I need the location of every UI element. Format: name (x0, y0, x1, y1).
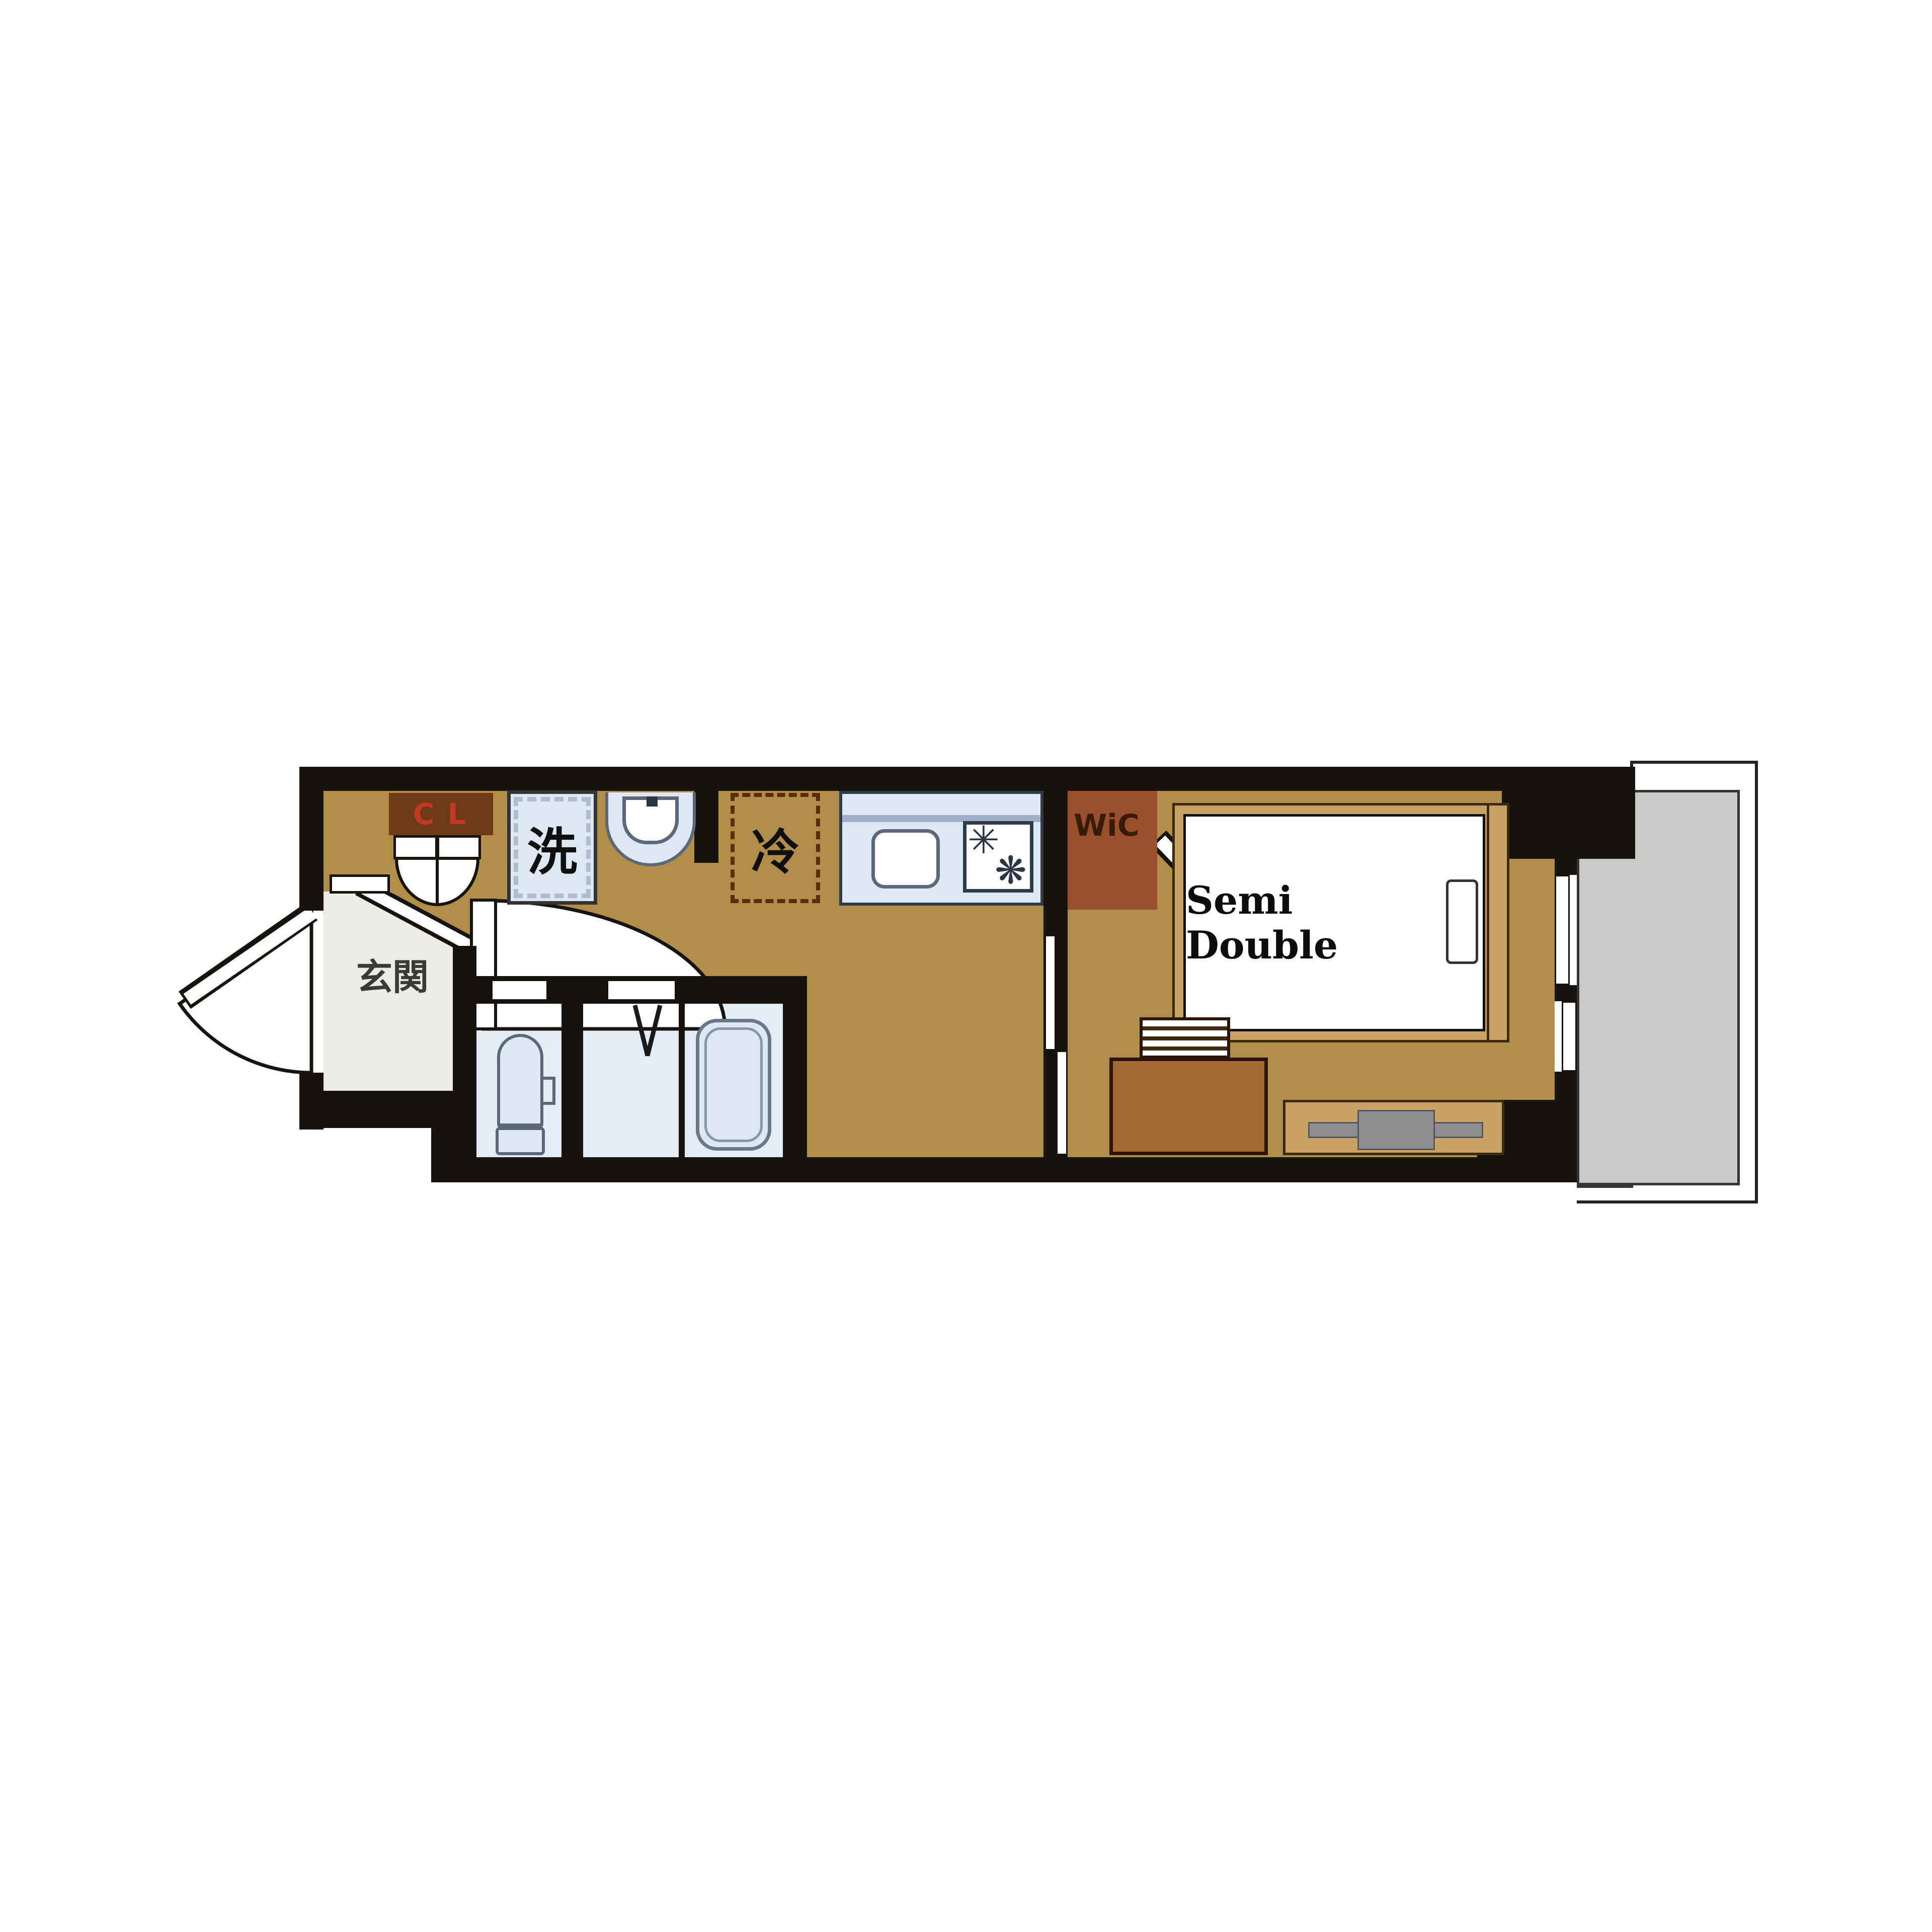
wall-tub-right (783, 976, 807, 1182)
desk-chair (1140, 1017, 1230, 1059)
tv-screen (1357, 1110, 1435, 1150)
bed-pillow (1446, 879, 1478, 964)
entrance-label: 玄関 (356, 947, 429, 1000)
bedroom-sliding-door-panel1 (1044, 935, 1056, 1051)
refrigerator-kanji: 冷 (735, 797, 816, 899)
washer-kanji: 洗 (511, 794, 594, 901)
wall-hall-stub (694, 791, 718, 863)
balcony-window-panel2 (1562, 1001, 1577, 1072)
desk (1109, 1058, 1268, 1155)
entrance-label-wrap: 玄関 (332, 951, 453, 996)
vanity-door (606, 979, 677, 1001)
wall-right-window-jamb3 (1555, 1072, 1577, 1102)
wall-right-window-jamb1 (1555, 859, 1577, 875)
washbasin-faucet-icon (647, 796, 658, 807)
bed-frame-seam (1487, 803, 1489, 1042)
wall-bottom (431, 1157, 1577, 1182)
wic-label: WiC (1074, 808, 1140, 843)
stove-burner-right-icon: ❋ (995, 848, 1027, 893)
hall-door-arc-icon (484, 901, 725, 1029)
toilet-handle-icon (543, 1077, 555, 1105)
kitchen-counter: ✳ ❋ (839, 791, 1043, 906)
kitchen-sink (871, 829, 940, 889)
wall-entry-step (431, 1091, 455, 1182)
wall-toilet-vanity (561, 976, 583, 1157)
bed-label: Semi Double (1186, 878, 1422, 968)
bathtub-inner (704, 1027, 763, 1142)
walk-in-closet-box: WiC (1068, 791, 1157, 910)
balcony-window-panel1 (1555, 875, 1570, 985)
refrigerator-box: 冷 (731, 793, 820, 903)
door-swing-layer (0, 0, 1932, 1932)
closet-bifold-right-icon (437, 858, 478, 905)
closet-cl: CL (389, 793, 493, 835)
floor-plan-page: CL 洗 冷 ✳ ❋ WiC (0, 0, 1932, 1932)
closet-bifold-panel-right (437, 835, 481, 859)
bedroom-sliding-door-panel2 (1056, 1051, 1068, 1155)
toilet-tank (496, 1127, 545, 1155)
wall-right-window-jamb2 (1555, 985, 1577, 1001)
washer-box: 洗 (507, 790, 597, 905)
shoe-cabinet (330, 874, 390, 894)
closet-label: CL (413, 797, 479, 831)
wall-left-upper (299, 767, 324, 911)
wall-top (299, 767, 1635, 791)
closet-bifold-panel-left (393, 835, 438, 859)
bathtub (696, 1019, 771, 1151)
wall-bedroom-pillar (1502, 767, 1635, 859)
closet-bifold-left-icon (396, 858, 437, 905)
kitchen-stove: ✳ ❋ (963, 821, 1033, 893)
toilet-bowl (497, 1034, 543, 1131)
toilet-door (491, 979, 548, 1001)
bed-mattress: Semi Double (1183, 814, 1485, 1031)
wall-vanity-tub (679, 1004, 685, 1157)
wall-genkan-toilet (453, 946, 476, 1157)
